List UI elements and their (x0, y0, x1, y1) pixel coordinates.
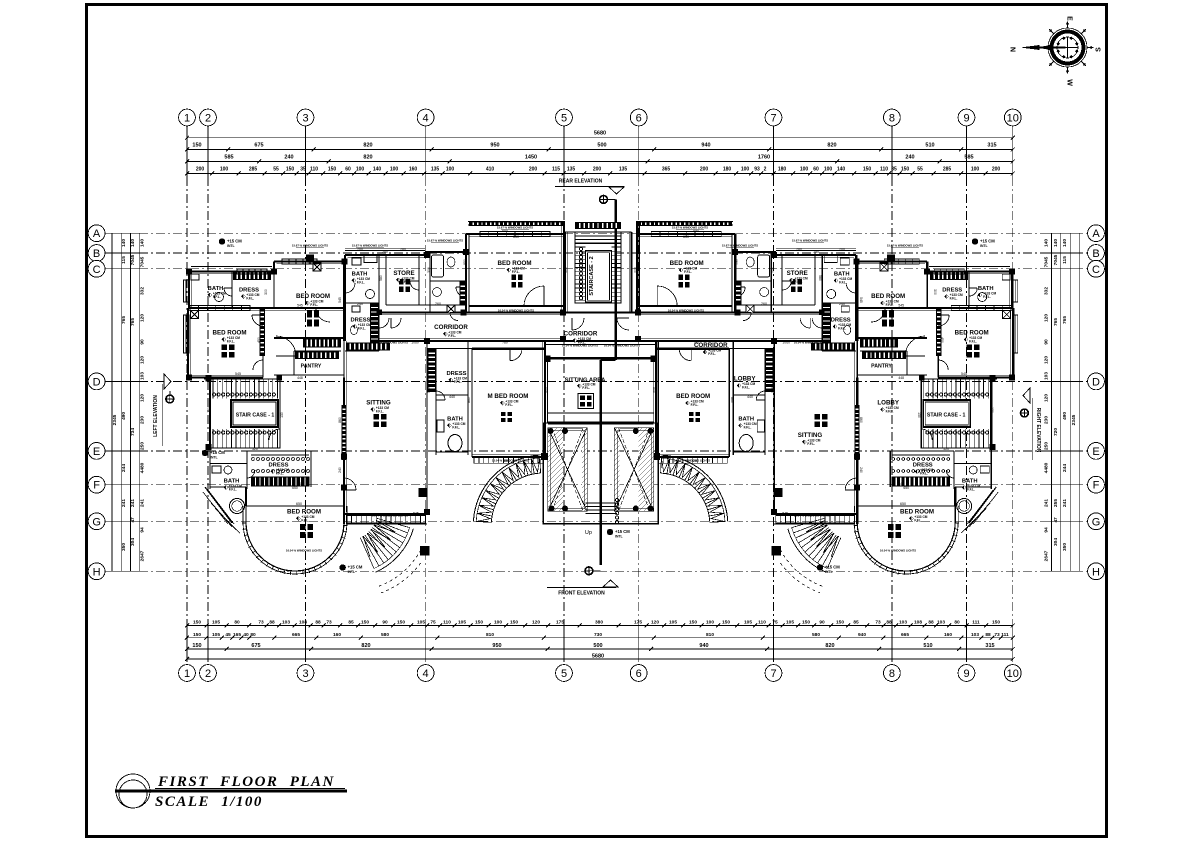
svg-text:810: 810 (486, 632, 494, 638)
svg-text:150: 150 (836, 620, 844, 626)
svg-text:650: 650 (502, 229, 508, 233)
svg-text:860: 860 (338, 417, 342, 423)
svg-text:350: 350 (1062, 543, 1068, 551)
svg-text:F.F.L.: F.F.L. (512, 270, 520, 274)
svg-text:315: 315 (985, 643, 994, 649)
svg-text:88: 88 (985, 632, 991, 638)
svg-text:F.F.L.: F.F.L. (213, 295, 221, 299)
svg-text:150: 150 (901, 167, 910, 173)
svg-text:440: 440 (297, 482, 303, 486)
svg-text:300: 300 (264, 289, 268, 295)
svg-text:B: B (93, 248, 100, 260)
svg-text:490: 490 (1062, 412, 1068, 420)
svg-text:100: 100 (220, 167, 229, 173)
svg-text:365: 365 (662, 167, 671, 173)
svg-text:230: 230 (140, 416, 146, 424)
svg-text:F.F.L.: F.F.L. (886, 410, 894, 414)
svg-text:1060: 1060 (411, 341, 419, 345)
svg-text:7045: 7045 (1044, 256, 1050, 267)
svg-text:500: 500 (593, 643, 602, 649)
svg-text:INTL: INTL (227, 244, 235, 248)
svg-text:A: A (93, 228, 101, 240)
svg-text:4480: 4480 (1044, 462, 1050, 473)
svg-text:260: 260 (761, 302, 767, 306)
svg-text:780: 780 (502, 341, 508, 345)
svg-text:241: 241 (1044, 499, 1050, 507)
svg-text:200: 200 (888, 257, 894, 261)
svg-text:90: 90 (140, 339, 146, 345)
svg-text:F.F.L.: F.F.L. (276, 472, 284, 476)
svg-text:45: 45 (225, 632, 231, 638)
svg-text:9: 9 (963, 668, 969, 680)
svg-text:94: 94 (1044, 527, 1050, 533)
svg-text:16.04 % WINDOWS LIGHTS: 16.04 % WINDOWS LIGHTS (492, 459, 528, 463)
svg-text:440: 440 (747, 395, 753, 399)
svg-text:410: 410 (486, 167, 495, 173)
svg-text:100: 100 (390, 167, 399, 173)
svg-text:F: F (93, 480, 100, 492)
svg-text:150: 150 (475, 620, 483, 626)
svg-text:G: G (92, 516, 101, 528)
svg-text:860: 860 (730, 397, 734, 403)
svg-text:241: 241 (140, 499, 146, 507)
svg-text:241: 241 (130, 499, 136, 507)
svg-text:110: 110 (880, 167, 888, 173)
svg-text:7045: 7045 (140, 256, 146, 267)
svg-text:665: 665 (901, 632, 909, 638)
svg-text:2647: 2647 (1044, 550, 1050, 561)
svg-text:F.F.L.: F.F.L. (708, 352, 716, 356)
svg-text:120: 120 (1044, 356, 1050, 364)
svg-text:16.04 % WINDOWS LIGHTS: 16.04 % WINDOWS LIGHTS (286, 549, 322, 553)
svg-text:73: 73 (875, 620, 881, 626)
svg-text:7: 7 (770, 112, 776, 124)
svg-text:73: 73 (994, 632, 1000, 638)
svg-text:H: H (93, 566, 101, 578)
svg-text:820: 820 (827, 143, 836, 149)
svg-text:820: 820 (825, 643, 834, 649)
svg-text:285: 285 (943, 167, 952, 173)
svg-text:16.04 % WINDOWS LIGHTS: 16.04 % WINDOWS LIGHTS (794, 514, 830, 518)
svg-text:135: 135 (619, 167, 628, 173)
svg-text:500: 500 (564, 267, 568, 273)
svg-text:500: 500 (652, 387, 656, 393)
svg-text:73: 73 (258, 620, 264, 626)
svg-text:255: 255 (1053, 499, 1059, 507)
svg-text:200: 200 (839, 248, 845, 252)
svg-text:175: 175 (556, 620, 564, 626)
svg-text:+15 CM: +15 CM (615, 529, 630, 534)
svg-text:Up: Up (585, 530, 592, 536)
svg-text:160: 160 (409, 167, 418, 173)
svg-text:100: 100 (494, 620, 502, 626)
svg-text:7045: 7045 (1053, 254, 1059, 265)
svg-text:F.F.L.: F.F.L. (807, 442, 815, 446)
svg-text:240: 240 (338, 467, 342, 473)
svg-text:15.67 % WINDOWS LIGHTS: 15.67 % WINDOWS LIGHTS (427, 239, 463, 243)
svg-text:450: 450 (257, 337, 261, 343)
svg-text:665: 665 (292, 632, 300, 638)
svg-text:120: 120 (207, 407, 211, 413)
svg-text:F.F.L.: F.F.L. (246, 297, 254, 301)
svg-text:510: 510 (923, 643, 932, 649)
svg-text:150: 150 (192, 143, 201, 149)
svg-text:F.F.L.: F.F.L. (448, 334, 456, 338)
svg-text:88: 88 (315, 620, 321, 626)
svg-text:500: 500 (597, 143, 606, 149)
svg-text:120: 120 (140, 314, 146, 322)
svg-text:150: 150 (992, 620, 1000, 626)
svg-text:105: 105 (458, 620, 466, 626)
svg-text:160: 160 (333, 632, 341, 638)
svg-text:140: 140 (121, 239, 127, 247)
svg-text:88: 88 (928, 620, 934, 626)
svg-text:940: 940 (858, 632, 866, 638)
svg-text:300: 300 (427, 267, 431, 273)
svg-text:140: 140 (837, 167, 846, 173)
svg-text:INTL: INTL (825, 570, 833, 574)
svg-text:REAR ELEVATION: REAR ELEVATION (559, 179, 603, 185)
svg-text:315: 315 (987, 143, 996, 149)
svg-text:150: 150 (802, 620, 810, 626)
svg-text:F.F.L.: F.F.L. (691, 403, 699, 407)
svg-text:5: 5 (561, 668, 567, 680)
svg-text:47: 47 (130, 517, 136, 523)
svg-text:240: 240 (859, 467, 863, 473)
svg-text:730: 730 (594, 632, 602, 638)
svg-text:F.F.L.: F.F.L. (357, 281, 365, 285)
svg-text:600: 600 (692, 459, 698, 463)
svg-text:90: 90 (819, 620, 825, 626)
svg-text:103: 103 (937, 620, 945, 626)
svg-text:55: 55 (273, 167, 279, 173)
svg-text:100: 100 (706, 620, 714, 626)
svg-text:260: 260 (435, 302, 441, 306)
svg-text:140: 140 (1044, 239, 1050, 247)
svg-text:150: 150 (286, 167, 295, 173)
svg-text:200: 200 (529, 167, 538, 173)
svg-text:F.F.L.: F.F.L. (301, 519, 309, 523)
svg-text:675: 675 (254, 143, 263, 149)
svg-text:A: A (1092, 228, 1100, 240)
svg-text:75: 75 (430, 620, 436, 626)
svg-text:2345: 2345 (112, 414, 118, 425)
svg-text:500: 500 (770, 387, 774, 393)
svg-text:85: 85 (348, 620, 354, 626)
svg-text:F.F.L.: F.F.L. (452, 426, 460, 430)
svg-text:765: 765 (121, 316, 127, 324)
svg-text:W: W (1066, 79, 1073, 86)
svg-text:448: 448 (297, 376, 303, 380)
svg-text:110: 110 (310, 167, 318, 173)
svg-text:280: 280 (796, 248, 802, 252)
svg-text:500: 500 (633, 267, 637, 273)
svg-text:585: 585 (224, 155, 233, 161)
svg-text:100: 100 (356, 167, 365, 173)
svg-text:16.04 % WINDOWS LIGHTS: 16.04 % WINDOWS LIGHTS (794, 341, 830, 345)
svg-text:8: 8 (889, 112, 895, 124)
svg-text:8: 8 (889, 668, 895, 680)
svg-text:140: 140 (130, 239, 136, 247)
svg-text:545: 545 (235, 372, 241, 376)
svg-text:200: 200 (307, 262, 313, 266)
svg-text:150: 150 (328, 167, 337, 173)
svg-text:860: 860 (859, 417, 863, 423)
svg-text:150: 150 (510, 620, 518, 626)
svg-text:440: 440 (898, 482, 904, 486)
svg-text:150: 150 (863, 167, 872, 173)
svg-text:LEFT ELEVATION: LEFT ELEVATION (153, 395, 159, 437)
svg-text:115: 115 (121, 256, 127, 264)
svg-text:47: 47 (1053, 517, 1059, 523)
svg-text:580: 580 (379, 275, 383, 281)
svg-text:500: 500 (427, 387, 431, 393)
svg-text:93: 93 (754, 167, 760, 173)
svg-text:E: E (1066, 16, 1073, 21)
svg-text:120: 120 (532, 620, 540, 626)
svg-text:5: 5 (561, 112, 567, 124)
svg-text:140: 140 (373, 167, 382, 173)
svg-text:950: 950 (492, 643, 501, 649)
svg-text:675: 675 (251, 643, 260, 649)
svg-text:1450: 1450 (525, 155, 537, 161)
svg-text:100: 100 (971, 167, 980, 173)
svg-text:E: E (1092, 446, 1099, 458)
svg-text:F.F.L.: F.F.L. (310, 303, 318, 307)
svg-text:650: 650 (900, 502, 906, 506)
svg-text:15.67 % WINDOWS LIGHTS: 15.67 % WINDOWS LIGHTS (722, 244, 758, 248)
svg-text:240: 240 (839, 302, 845, 306)
svg-text:STAIRCASE - 2: STAIRCASE - 2 (589, 256, 595, 295)
svg-text:105: 105 (212, 632, 220, 638)
svg-text:200: 200 (593, 167, 602, 173)
svg-text:+15 CM: +15 CM (227, 239, 242, 244)
svg-text:200: 200 (196, 167, 205, 173)
svg-text:332: 332 (1044, 287, 1050, 295)
svg-text:103: 103 (140, 372, 146, 380)
svg-text:F.F.L.: F.F.L. (684, 270, 692, 274)
svg-text:200: 200 (889, 262, 895, 266)
svg-text:332: 332 (140, 287, 146, 295)
svg-text:350: 350 (121, 543, 127, 551)
svg-text:RIGHT ELEVATION: RIGHT ELEVATION (1035, 408, 1041, 453)
svg-text:150: 150 (193, 620, 201, 626)
svg-text:110: 110 (758, 620, 766, 626)
svg-text:F.F.L.: F.F.L. (505, 403, 513, 407)
svg-text:7045: 7045 (130, 254, 136, 265)
svg-text:100: 100 (824, 167, 833, 173)
svg-text:6: 6 (636, 668, 642, 680)
svg-text:850: 850 (734, 259, 738, 265)
svg-text:820: 820 (363, 143, 372, 149)
svg-text:650: 650 (292, 486, 298, 490)
svg-text:16.04 % WINDOWS LIGHTS: 16.04 % WINDOWS LIGHTS (372, 514, 408, 518)
svg-text:585: 585 (964, 155, 973, 161)
svg-text:110: 110 (443, 620, 451, 626)
svg-text:10: 10 (1007, 668, 1019, 680)
svg-text:650: 650 (683, 235, 689, 239)
svg-text:950: 950 (490, 143, 499, 149)
svg-text:765: 765 (1062, 316, 1068, 324)
svg-text:F.F.L.: F.F.L. (969, 340, 977, 344)
svg-text:285: 285 (249, 167, 258, 173)
svg-text:5680: 5680 (594, 131, 606, 137)
svg-text:244: 244 (121, 464, 127, 472)
svg-text:103: 103 (971, 632, 979, 638)
svg-text:140: 140 (1062, 239, 1068, 247)
svg-text:545: 545 (338, 297, 342, 303)
svg-text:103: 103 (282, 620, 290, 626)
svg-text:90: 90 (382, 620, 388, 626)
svg-text:100: 100 (741, 167, 750, 173)
svg-text:200: 200 (307, 257, 313, 261)
svg-text:300: 300 (933, 289, 937, 295)
svg-text:C: C (1092, 264, 1100, 276)
svg-text:55: 55 (917, 167, 923, 173)
svg-text:250: 250 (1044, 442, 1050, 450)
svg-text:3: 3 (302, 112, 308, 124)
svg-text:6: 6 (636, 112, 642, 124)
svg-text:650: 650 (296, 502, 302, 506)
svg-text:2: 2 (764, 167, 767, 173)
svg-text:1: 1 (184, 112, 190, 124)
svg-text:150: 150 (361, 620, 369, 626)
svg-text:520: 520 (943, 447, 949, 451)
svg-text:4480: 4480 (140, 462, 146, 473)
svg-text:120: 120 (1044, 314, 1050, 322)
svg-text:73: 73 (326, 620, 332, 626)
svg-text:120: 120 (140, 394, 146, 402)
svg-text:300: 300 (770, 267, 774, 273)
svg-text:F.F.L.: F.F.L. (582, 386, 590, 390)
svg-text:STAIR CASE - 1: STAIR CASE - 1 (236, 413, 275, 419)
svg-text:135: 135 (567, 167, 576, 173)
svg-text:108: 108 (299, 620, 307, 626)
svg-text:160: 160 (944, 632, 952, 638)
svg-text:E: E (93, 446, 100, 458)
svg-text:F.F.L.: F.F.L. (227, 340, 235, 344)
svg-text:450: 450 (940, 337, 944, 343)
svg-text:111: 111 (972, 620, 980, 626)
svg-text:4: 4 (423, 668, 429, 680)
svg-text:650: 650 (903, 486, 909, 490)
svg-text:120: 120 (990, 407, 994, 413)
svg-text:15.67 % WINDOWS LIGHTS: 15.67 % WINDOWS LIGHTS (887, 244, 923, 248)
svg-text:F.F.L.: F.F.L. (454, 380, 462, 384)
svg-text:3: 3 (302, 668, 308, 680)
svg-text:150: 150 (689, 620, 697, 626)
svg-text:240: 240 (905, 155, 914, 161)
svg-text:135: 135 (431, 167, 440, 173)
svg-text:F.F.L.: F.F.L. (886, 303, 894, 307)
svg-text:F.F.L.: F.F.L. (839, 281, 847, 285)
svg-text:94: 94 (140, 527, 146, 533)
svg-text:111: 111 (1001, 632, 1009, 638)
svg-text:35: 35 (300, 167, 306, 173)
svg-text:FIRST FLOOR PLAN: FIRST FLOOR PLAN (157, 774, 335, 790)
svg-text:200: 200 (992, 167, 1001, 173)
svg-text:120: 120 (140, 356, 146, 364)
svg-text:STAIR CASE - 1: STAIR CASE - 1 (927, 413, 966, 419)
svg-text:180: 180 (723, 167, 732, 173)
svg-text:580: 580 (818, 275, 822, 281)
svg-text:304: 304 (130, 538, 136, 546)
svg-text:780: 780 (693, 341, 699, 345)
svg-text:F.F.L.: F.F.L. (744, 426, 752, 430)
svg-text:150: 150 (722, 620, 730, 626)
svg-text:2: 2 (205, 668, 211, 680)
svg-text:545: 545 (413, 512, 419, 516)
svg-text:150: 150 (192, 643, 201, 649)
svg-text:16.04 % WINDOWS LIGHTS: 16.04 % WINDOWS LIGHTS (372, 341, 408, 345)
svg-text:+15 CM: +15 CM (210, 450, 225, 455)
svg-text:108: 108 (914, 620, 922, 626)
svg-text:250: 250 (140, 442, 146, 450)
svg-text:500: 500 (545, 387, 549, 393)
svg-text:1760: 1760 (758, 155, 770, 161)
svg-text:7: 7 (770, 668, 776, 680)
svg-text:D: D (93, 376, 101, 388)
svg-text:F.F.L.: F.F.L. (795, 280, 803, 284)
svg-text:40: 40 (243, 632, 249, 638)
svg-text:INTL: INTL (210, 456, 218, 460)
svg-text:545: 545 (782, 512, 788, 516)
svg-text:D: D (1092, 376, 1100, 388)
svg-text:35: 35 (891, 167, 897, 173)
svg-text:F.F.L.: F.F.L. (376, 410, 384, 414)
svg-text:600: 600 (504, 459, 510, 463)
svg-text:520: 520 (252, 447, 258, 451)
svg-text:1060: 1060 (782, 341, 790, 345)
svg-text:85: 85 (853, 620, 859, 626)
svg-text:850: 850 (463, 259, 467, 265)
svg-text:80: 80 (954, 620, 960, 626)
svg-text:940: 940 (699, 643, 708, 649)
svg-text:440: 440 (449, 395, 455, 399)
svg-text:140: 140 (1053, 239, 1059, 247)
svg-text:241: 241 (1062, 499, 1068, 507)
svg-text:F.F.L.: F.F.L. (742, 386, 750, 390)
svg-text:F.F.L.: F.F.L. (401, 280, 409, 284)
svg-text:140: 140 (140, 239, 146, 247)
svg-text:780: 780 (513, 311, 519, 315)
svg-text:2345: 2345 (1071, 414, 1077, 425)
svg-text:280: 280 (382, 250, 388, 254)
svg-text:16.04 % WINDOWS LIGHTS: 16.04 % WINDOWS LIGHTS (880, 549, 916, 553)
svg-text:88: 88 (886, 620, 892, 626)
svg-text:820: 820 (363, 155, 372, 161)
svg-text:INTL: INTL (615, 535, 623, 539)
svg-text:244: 244 (1062, 464, 1068, 472)
svg-text:+15 CM: +15 CM (980, 239, 995, 244)
svg-text:103: 103 (899, 620, 907, 626)
svg-text:60: 60 (345, 167, 351, 173)
svg-text:90: 90 (1044, 339, 1050, 345)
svg-text:510: 510 (925, 143, 934, 149)
svg-text:240: 240 (284, 155, 293, 161)
svg-text:765: 765 (130, 318, 136, 326)
svg-text:F.F.L.: F.F.L. (920, 472, 928, 476)
svg-text:1: 1 (184, 668, 190, 680)
svg-text:2: 2 (205, 112, 211, 124)
svg-text:820: 820 (361, 643, 370, 649)
svg-text:105: 105 (417, 620, 425, 626)
svg-text:4: 4 (423, 112, 429, 124)
svg-text:720: 720 (1053, 428, 1059, 436)
svg-text:16.04 % WINDOWS LIGHTS: 16.04 % WINDOWS LIGHTS (604, 344, 640, 348)
svg-text:10: 10 (1007, 112, 1019, 124)
svg-text:230: 230 (1044, 416, 1050, 424)
